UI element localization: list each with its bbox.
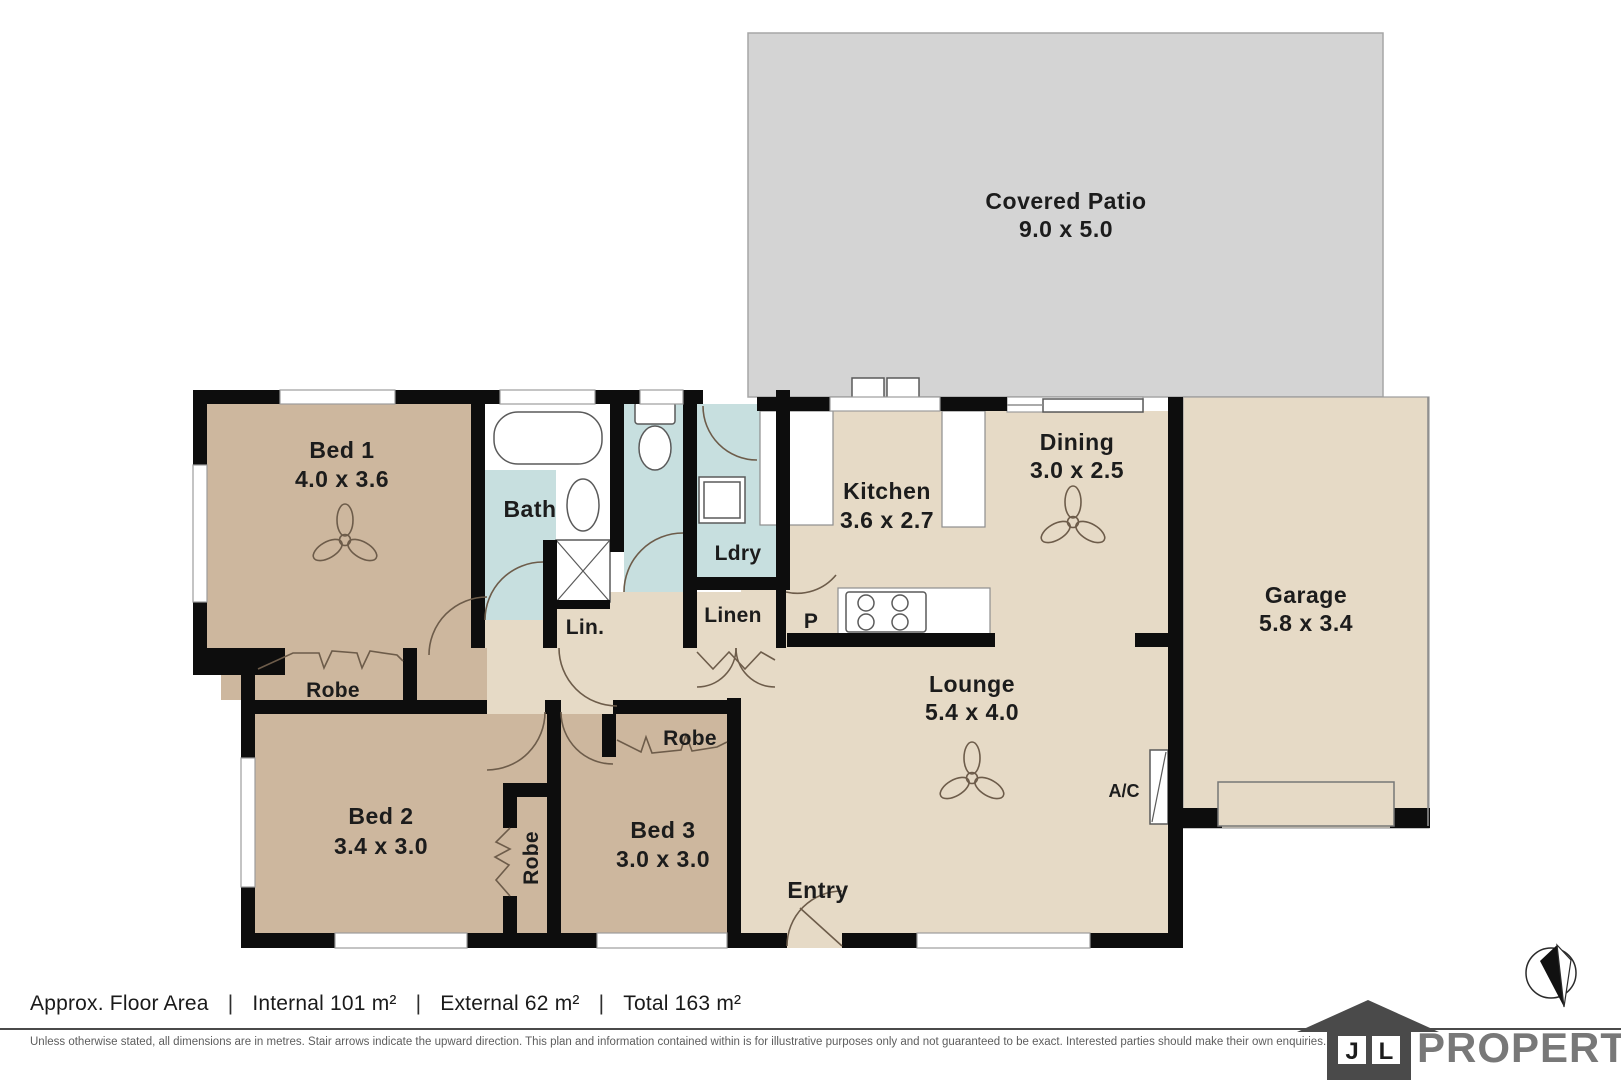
svg-text:Bed 3: Bed 3 — [630, 817, 695, 843]
room-label-bath: Bath — [503, 496, 556, 522]
svg-text:Garage: Garage — [1265, 582, 1347, 608]
svg-text:3.4 x 3.0: 3.4 x 3.0 — [334, 833, 428, 859]
disclaimer-text: Unless otherwise stated, all dimensions … — [30, 1036, 1326, 1048]
separator: | — [228, 992, 234, 1016]
room-label-entry: Entry — [787, 877, 848, 903]
svg-text:Bath: Bath — [503, 496, 556, 522]
svg-text:5.4 x 4.0: 5.4 x 4.0 — [925, 699, 1019, 725]
compass-north-icon — [1515, 937, 1587, 1015]
area-label: Approx. Floor Area — [30, 992, 209, 1016]
room-label-linen: Linen — [704, 604, 762, 627]
room-label-lin: Lin. — [566, 616, 605, 639]
svg-text:Covered Patio: Covered Patio — [985, 188, 1146, 214]
svg-text:Robe: Robe — [520, 831, 543, 885]
separator: | — [599, 992, 605, 1016]
floor-area-summary: Approx. Floor Area | Internal 101 m² | E… — [30, 992, 741, 1016]
svg-text:5.8 x 3.4: 5.8 x 3.4 — [1259, 610, 1353, 636]
svg-text:Linen: Linen — [704, 604, 762, 627]
washing-machine-icon — [699, 477, 745, 523]
svg-text:3.6 x 2.7: 3.6 x 2.7 — [840, 507, 934, 533]
separator: | — [416, 992, 422, 1016]
external-area: External 62 m² — [440, 992, 579, 1016]
toilet-icon — [635, 402, 675, 470]
room-label-pantry: P — [804, 610, 818, 633]
svg-text:Entry: Entry — [787, 877, 848, 903]
svg-text:9.0 x 5.0: 9.0 x 5.0 — [1019, 216, 1113, 242]
svg-text:J: J — [1345, 1038, 1358, 1065]
svg-text:P: P — [804, 610, 818, 633]
floorplan-page: Covered Patio 9.0 x 5.0 Bed 1 4.0 x 3.6 … — [0, 0, 1621, 1080]
svg-text:Robe: Robe — [663, 727, 717, 750]
room-label-robe1: Robe — [306, 679, 360, 702]
jl-property-logo-brand: PROPERTY — [1417, 1024, 1621, 1072]
total-area: Total 163 m² — [623, 992, 741, 1016]
svg-text:Kitchen: Kitchen — [843, 478, 931, 504]
svg-text:Bed 1: Bed 1 — [309, 437, 374, 463]
garage-door — [1218, 782, 1394, 826]
ac-unit — [1150, 750, 1168, 824]
internal-area: Internal 101 m² — [252, 992, 396, 1016]
svg-text:A/C: A/C — [1109, 781, 1140, 801]
svg-text:4.0 x 3.6: 4.0 x 3.6 — [295, 466, 389, 492]
room-label-ldry: Ldry — [715, 542, 762, 565]
svg-text:Bed 2: Bed 2 — [348, 803, 413, 829]
svg-text:Dining: Dining — [1040, 429, 1115, 455]
svg-text:Ldry: Ldry — [715, 542, 762, 565]
shower-icon — [556, 540, 610, 602]
svg-text:Lounge: Lounge — [929, 671, 1015, 697]
bathtub-icon — [494, 412, 602, 464]
room-label-robe2: Robe — [520, 831, 543, 885]
svg-text:3.0 x 3.0: 3.0 x 3.0 — [616, 846, 710, 872]
svg-text:3.0 x 2.5: 3.0 x 2.5 — [1030, 457, 1124, 483]
svg-text:L: L — [1379, 1038, 1394, 1065]
svg-text:Robe: Robe — [306, 679, 360, 702]
room-label-ac: A/C — [1109, 781, 1140, 801]
cooktop-icon — [846, 592, 926, 632]
room-label-robe3: Robe — [663, 727, 717, 750]
svg-text:Lin.: Lin. — [566, 616, 605, 639]
floorplan-drawing: Covered Patio 9.0 x 5.0 Bed 1 4.0 x 3.6 … — [0, 0, 1621, 1080]
basin-icon — [567, 479, 599, 531]
covered-patio-area — [748, 33, 1383, 397]
